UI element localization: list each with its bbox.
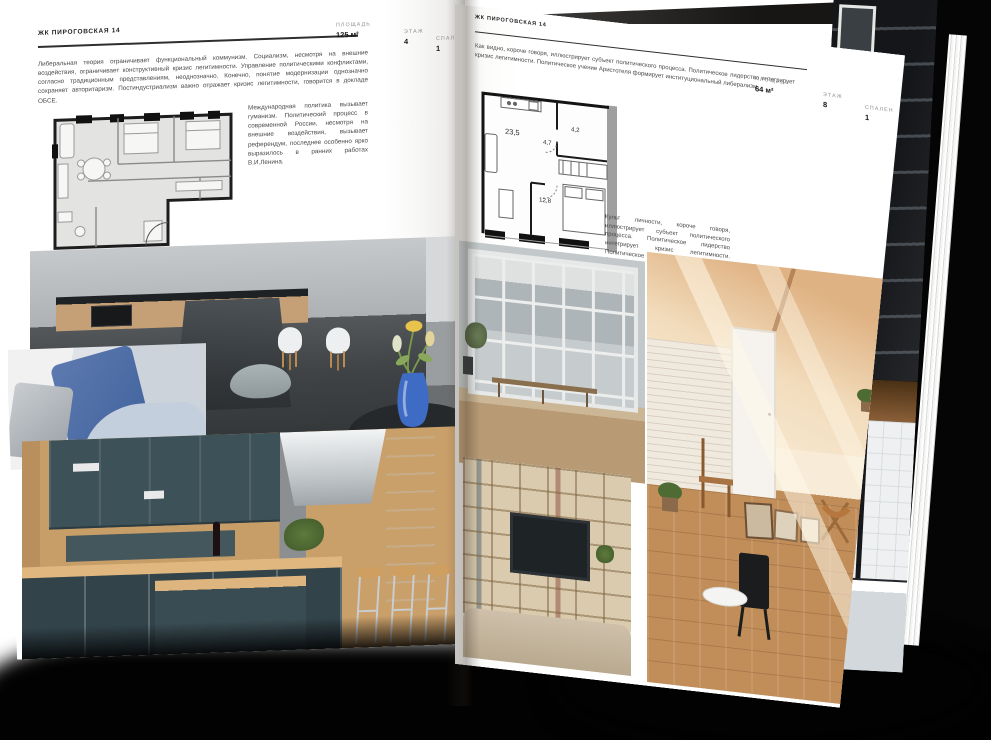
page-right: ЖК ПИРОГОВСКАЯ 14 Как видно, короче гово… [455, 4, 905, 715]
backsplash-panel [66, 530, 235, 562]
stat-floor: ЭТАЖ 8 [823, 92, 843, 111]
teal-kitchen-photo [22, 426, 465, 660]
side-note: Международная политика вызывает гуманизм… [248, 99, 368, 167]
plant [596, 544, 614, 564]
stat-label: ПЛОЩАДЬ [336, 21, 371, 28]
stat-area: ПЛОЩАДЬ 64 м² [755, 76, 790, 97]
floor-plan-left [48, 98, 238, 257]
oven-shape [91, 305, 132, 328]
room-area-bedroom: 12,8 [539, 197, 552, 205]
intro-paragraph: Либеральная теория ограничивает функцион… [38, 48, 368, 105]
herb-plant [284, 518, 324, 551]
stat-value: 4 [404, 36, 424, 46]
white-chair [326, 327, 350, 354]
stat-label: ЭТАЖ [404, 28, 424, 35]
plant [465, 321, 487, 350]
stat-value: 1 [865, 113, 894, 125]
page-title: ЖК ПИРОГОВСКАЯ 14 [38, 27, 120, 37]
stat-bedrooms: СПАЛЕН 1 [865, 105, 894, 125]
floor-plan-right: 23,5 4,7 4,2 12,8 [471, 80, 626, 262]
bookshelf-tv-photo [463, 457, 631, 676]
upper-cabinets [49, 433, 280, 530]
vase-with-flowers [378, 314, 448, 438]
stat-area: ПЛОЩАДЬ 125 м² [336, 21, 371, 39]
extractor-hood [280, 429, 387, 507]
page-left: ЖК ПИРОГОВСКАЯ 14 ПЛОЩАДЬ 125 м² ЭТАЖ 4 … [8, 0, 465, 660]
stat-value: 64 м² [755, 84, 790, 97]
stat-value: 8 [823, 100, 843, 111]
room-area-living: 23,5 [505, 127, 520, 138]
white-chair [278, 327, 302, 354]
room-area-bath: 4,2 [571, 126, 580, 134]
room-area-hall: 4,7 [543, 139, 552, 147]
window-livingroom-photo [459, 240, 645, 483]
stat-value: 125 м² [336, 29, 371, 39]
stool [463, 356, 473, 375]
page-title: ЖК ПИРОГОВСКАЯ 14 [475, 14, 547, 28]
stat-floor: ЭТАЖ 4 [404, 28, 424, 46]
tv-screen [510, 512, 590, 581]
header-rule [38, 35, 358, 48]
wine-bottle [213, 522, 220, 556]
stat-label: ЭТАЖ [823, 92, 843, 100]
magazine-spread-mockup: ЖК ПИРОГОВСКАЯ 14 ПЛОЩАДЬ 125 м² ЭТАЖ 4 … [0, 0, 991, 740]
